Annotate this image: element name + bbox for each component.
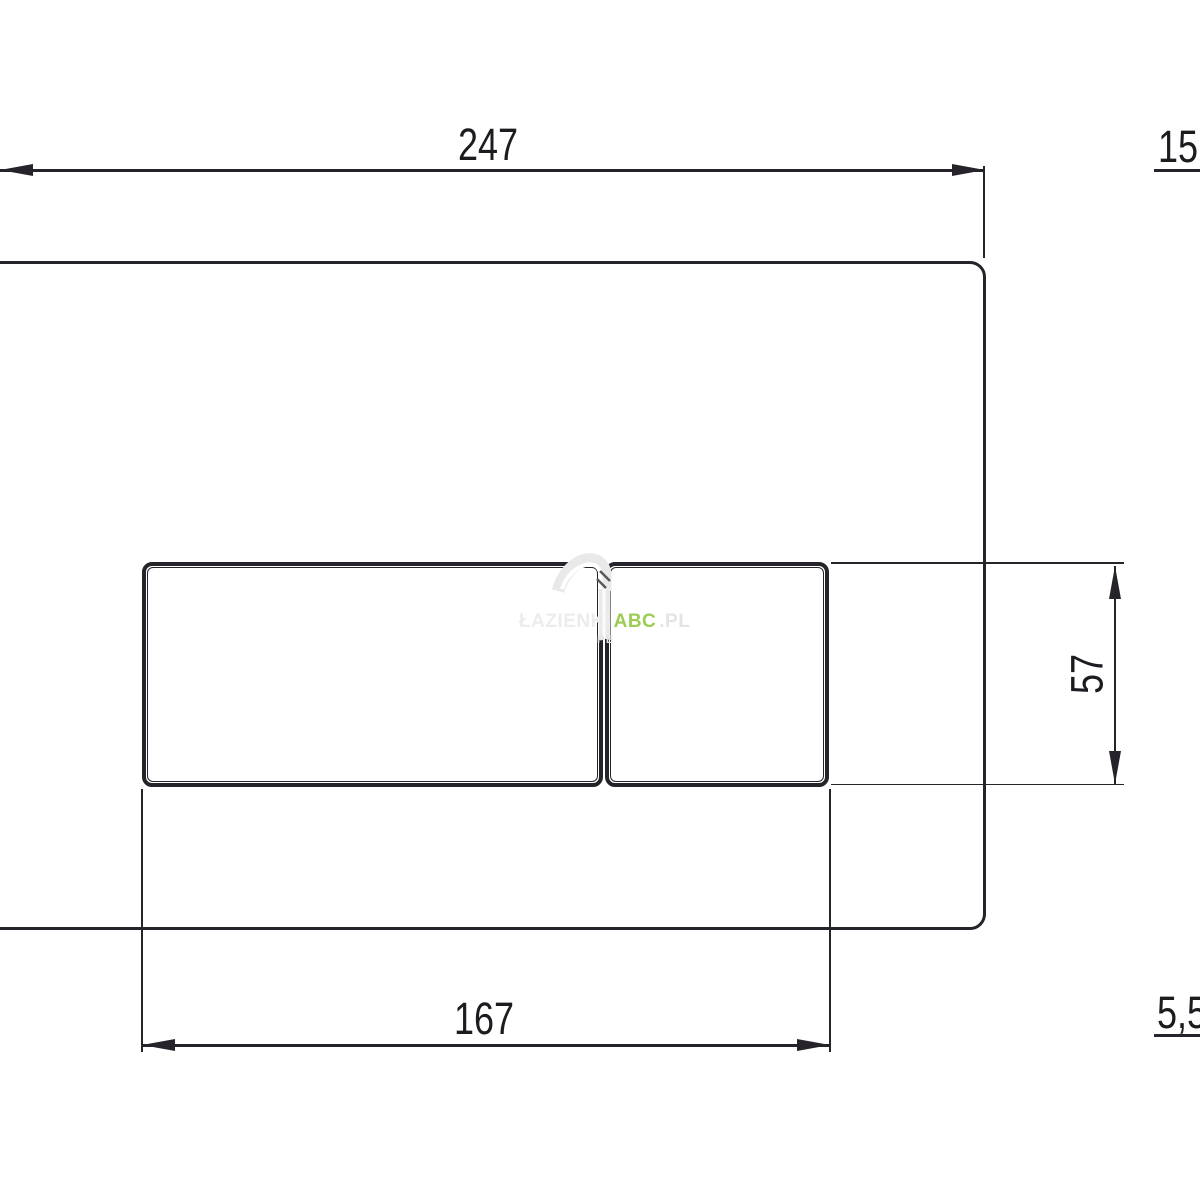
arrow-left-icon: [0, 164, 33, 176]
arrow-down-icon: [1109, 751, 1121, 784]
dimension-label-buttons-width: 167: [454, 996, 514, 1041]
underline-button-depth: [1154, 1034, 1200, 1037]
watermark-brand: ŁAZIENKI ABC .PL: [519, 611, 690, 632]
flush-button-small: [605, 562, 829, 787]
dimension-label-plate-width: 247: [458, 122, 518, 167]
dimension-label-button-height: 57: [1065, 654, 1110, 694]
watermark-brand-suffix: .PL: [659, 611, 690, 632]
arrow-left-icon: [142, 1039, 175, 1051]
watermark-brand-accent: ABC: [611, 611, 660, 632]
extension-line-167-left: [141, 789, 143, 1052]
dimension-label-button-depth: 5,5: [1157, 990, 1200, 1035]
arrow-up-icon: [1109, 566, 1121, 599]
extension-line-57-bottom: [831, 784, 1124, 786]
flush-button-small-inner-line: [610, 567, 824, 782]
arrow-right-icon: [952, 164, 985, 176]
dimension-line-167: [142, 1044, 830, 1047]
watermark-brand-prefix: ŁAZIENKI: [519, 611, 611, 632]
dimension-label-plate-depth: 15: [1158, 124, 1198, 169]
arrow-right-icon: [797, 1039, 830, 1051]
extension-line-57-top: [831, 562, 1124, 564]
flush-button-large-inner-line: [147, 567, 598, 782]
watermark-tagline: PE: [597, 634, 615, 646]
flush-button-large: [142, 562, 603, 787]
dimension-drawing-canvas: 247 15 57 167 5,5 ŁAZIENKI ABC .PL PE: [0, 0, 1200, 1200]
extension-line-167-right: [829, 789, 831, 1052]
underline-plate-depth: [1154, 169, 1200, 172]
extension-line-247-right: [983, 166, 985, 258]
